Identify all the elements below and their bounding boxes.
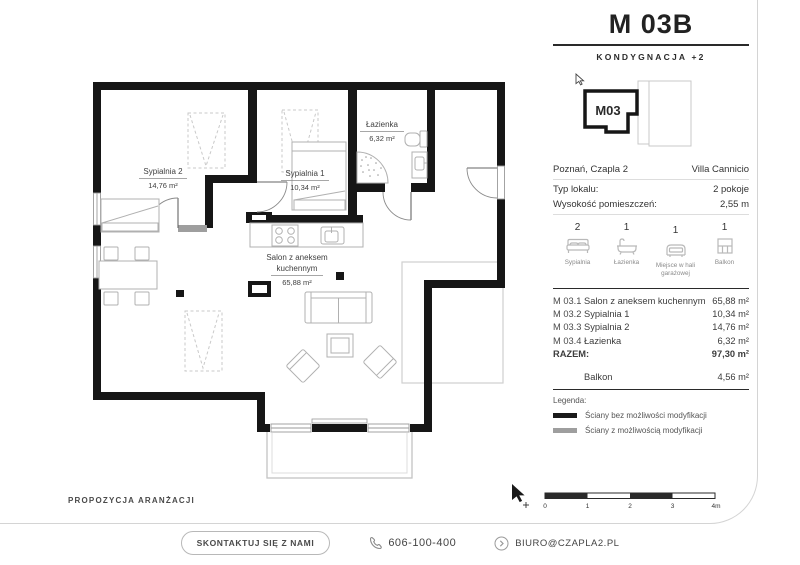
feature-bathrooms: 1 Łazienka	[602, 222, 651, 278]
scale-bar: 0 1 2 3 4m	[543, 493, 720, 510]
room-name: Salon z aneksem kuchennym	[584, 296, 712, 306]
coffee-table	[327, 334, 353, 357]
location-row: Poznań, Czapla 2 Villa Cannicio	[553, 160, 749, 179]
room-area: 65,88 m²	[712, 296, 749, 306]
room-name: Łazienka	[584, 336, 717, 346]
chevron-circle-icon	[494, 536, 509, 551]
unit-type-row: Typ lokalu: 2 pokoje	[553, 180, 749, 199]
balcony-row: Balkon 4,56 m²	[553, 372, 749, 390]
bed-icon	[565, 236, 591, 256]
balcony	[267, 430, 412, 478]
svg-text:0: 0	[543, 503, 547, 510]
wardrobe	[188, 113, 225, 168]
sofa	[305, 292, 372, 323]
phone-icon	[368, 536, 382, 550]
room-row: M 03.1 Salon z aneksem kuchennym 65,88 m…	[553, 294, 749, 307]
room-label-salon-line2: kuchennym	[277, 264, 318, 273]
balcony-door	[312, 419, 367, 423]
north-arrow-mini	[576, 74, 584, 85]
wardrobe	[185, 311, 222, 371]
window	[270, 423, 312, 433]
bed	[101, 199, 159, 232]
chair	[104, 292, 118, 305]
chair	[104, 247, 118, 260]
divider	[553, 214, 749, 215]
room-list: M 03.1 Salon z aneksem kuchennym 65,88 m…	[553, 288, 749, 361]
info-panel: M 03B KONDYGNACJA +2 M03 Poznań, Czapla …	[553, 10, 749, 435]
column	[176, 290, 184, 297]
total-row: RAZEM: 97,30 m²	[553, 348, 749, 361]
feature-label: Łazienka	[602, 259, 651, 267]
room-code: M 03.2	[553, 309, 584, 319]
room-row: M 03.2 Sypialnia 1 10,34 m²	[553, 307, 749, 320]
legend-label: Ściany z możliwością modyfikacji	[585, 426, 702, 435]
unit-label: M03	[595, 103, 620, 118]
count: 1	[602, 222, 651, 233]
north-arrow	[512, 484, 529, 508]
room-label-sypialnia1: Sypialnia 1	[285, 169, 325, 178]
feature-label: Miejsce w hali garażowej	[651, 262, 700, 278]
feature-label: Balkon	[700, 259, 749, 267]
arrangement-note: PROPOZYCJA ARANŻACJI	[68, 496, 195, 505]
floorplan-page: Sypialnia 2 14,76 m² Sypialnia 1 10,34 m…	[0, 0, 800, 565]
phone-number: 606-100-400	[388, 537, 456, 549]
bathroom-sink	[412, 152, 427, 178]
total-label: RAZEM:	[553, 349, 712, 359]
contact-button[interactable]: SKONTAKTUJ SIĘ Z NAMI	[181, 531, 331, 555]
room-area: 10,34 m²	[712, 309, 749, 319]
feature-label: Sypialnia	[553, 259, 602, 267]
neighbor-unit	[649, 81, 691, 146]
room-area: 14,76 m²	[712, 322, 749, 332]
legend: Legenda: Ściany bez możliwości modyfikac…	[553, 396, 749, 435]
footer-contact-bar: SKONTAKTUJ SIĘ Z NAMI 606-100-400 BIURO@…	[0, 531, 800, 555]
title-rule	[553, 44, 749, 46]
room-label-salon-line1: Salon z aneksem	[266, 253, 328, 262]
shower	[357, 152, 388, 183]
wall-swatch-modifiable	[553, 428, 577, 433]
shaft	[250, 283, 269, 295]
count: 1	[651, 225, 700, 236]
unit-info: Poznań, Czapla 2 Villa Cannicio Typ loka…	[553, 160, 749, 215]
features-row: 2 Sypialnia 1	[553, 222, 749, 282]
room-label-lazienka: Łazienka	[366, 120, 399, 129]
chair	[135, 247, 149, 260]
room-area-sypialnia2: 14,76 m²	[148, 181, 178, 190]
entrance-door	[467, 166, 506, 199]
legend-title: Legenda:	[553, 396, 749, 405]
room-code: M 03.3	[553, 322, 584, 332]
page-title: M 03B	[553, 10, 749, 40]
svg-text:1: 1	[586, 503, 590, 510]
building-minimap: M03	[561, 66, 741, 152]
feature-bedrooms: 2 Sypialnia	[553, 222, 602, 278]
dining-set	[99, 247, 157, 305]
value: 2 pokoje	[713, 184, 749, 195]
wall-swatch-fixed	[553, 413, 577, 418]
room-name: Sypialnia 2	[584, 322, 712, 332]
phone-contact[interactable]: 606-100-400	[368, 536, 456, 550]
floor-label: KONDYGNACJA +2	[553, 52, 749, 62]
bathtub-icon	[614, 236, 640, 256]
room-label-sypialnia2: Sypialnia 2	[143, 167, 183, 176]
email-contact[interactable]: BIURO@CZAPLA2.PL	[494, 536, 619, 551]
neighbor-unit	[638, 81, 649, 144]
room-area-salon: 65,88 m²	[282, 278, 312, 287]
room-row: M 03.4 Łazienka 6,32 m²	[553, 334, 749, 347]
legend-label: Ściany bez możliwości modyfikacji	[585, 411, 707, 420]
ceiling-height-row: Wysokość pomieszczeń: 2,55 m	[553, 199, 749, 214]
toilet	[405, 131, 427, 147]
balcony-area: 4,56 m²	[717, 372, 749, 382]
total-area: 97,30 m²	[712, 349, 749, 359]
label: Wysokość pomieszczeń:	[553, 199, 657, 210]
value: 2,55 m	[720, 199, 749, 210]
chair	[135, 292, 149, 305]
email-address: BIURO@CZAPLA2.PL	[515, 538, 619, 549]
count: 1	[700, 222, 749, 233]
room-code: M 03.1	[553, 296, 584, 306]
room-labels: Sypialnia 2 14,76 m² Sypialnia 1 10,34 m…	[139, 120, 404, 287]
armchair	[363, 345, 397, 379]
investment-name: Villa Cannicio	[692, 164, 749, 175]
feature-garage: 1 Miejsce w hali garażowej	[651, 222, 700, 278]
room-area-sypialnia1: 10,34 m²	[290, 183, 320, 192]
room-row: M 03.3 Sypialnia 2 14,76 m²	[553, 321, 749, 334]
car-icon	[663, 239, 689, 259]
svg-text:3: 3	[671, 503, 675, 510]
door-sypialnia1	[257, 182, 287, 212]
room-code: M 03.4	[553, 336, 584, 346]
label: Typ lokalu:	[553, 184, 598, 195]
room-area: 6,32 m²	[717, 336, 749, 346]
count: 2	[553, 222, 602, 233]
legend-item: Ściany bez możliwości modyfikacji	[553, 411, 749, 420]
room-name: Sypialnia 1	[584, 309, 712, 319]
window	[367, 423, 410, 433]
armchair	[286, 349, 320, 383]
balcony-icon	[712, 236, 738, 256]
room-area-lazienka: 6,32 m²	[369, 134, 395, 143]
svg-text:4m: 4m	[711, 503, 720, 510]
balcony-label: Balkon	[584, 372, 717, 382]
svg-text:2: 2	[628, 503, 632, 510]
location: Poznań, Czapla 2	[553, 164, 628, 175]
legend-item: Ściany z możliwością modyfikacji	[553, 426, 749, 435]
column	[336, 272, 344, 280]
kitchen-counter	[250, 223, 363, 247]
dining-table	[99, 261, 157, 289]
feature-balcony: 1 Balkon	[700, 222, 749, 278]
door-lazienka	[383, 192, 411, 220]
